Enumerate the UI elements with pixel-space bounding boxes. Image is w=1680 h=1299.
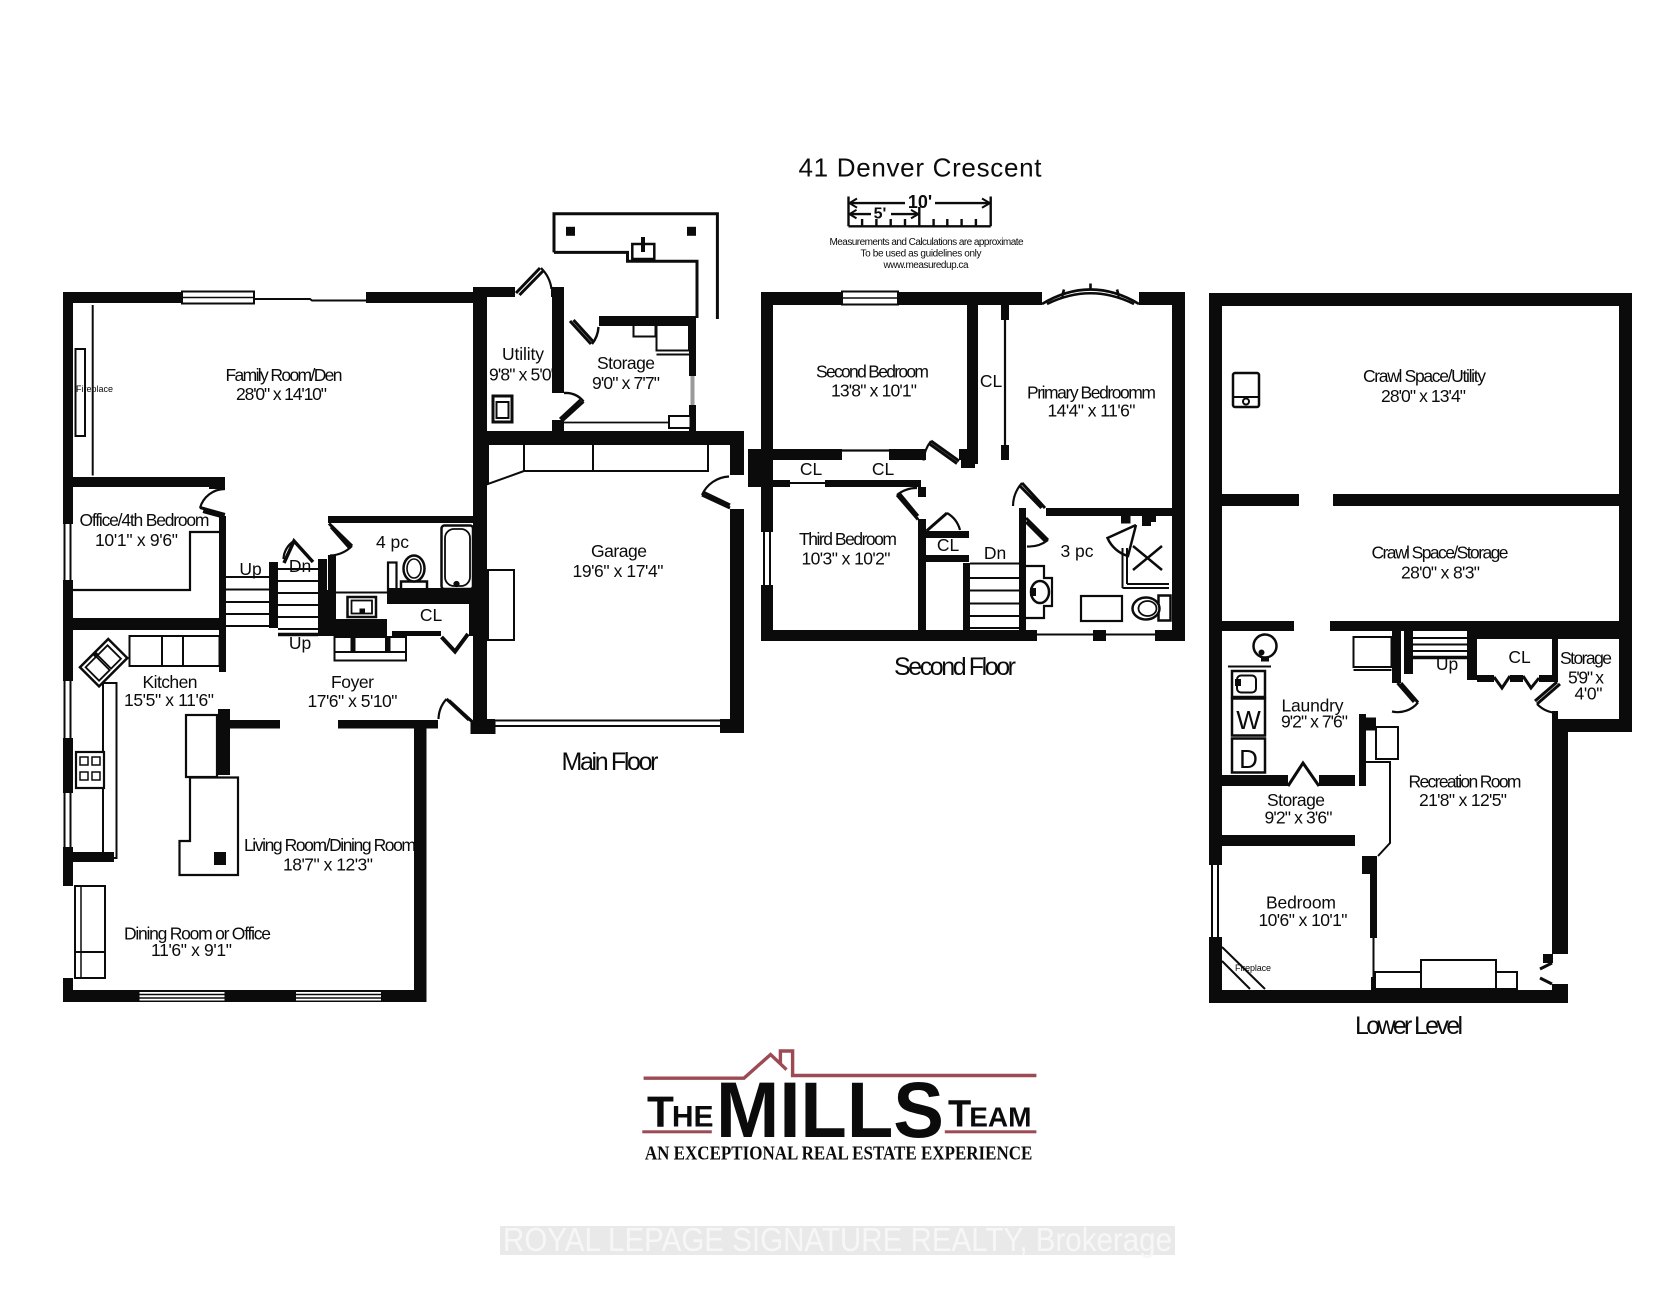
svg-text:Dn: Dn (984, 543, 1006, 563)
svg-text:3 pc: 3 pc (1060, 541, 1093, 561)
svg-text:MILLS: MILLS (716, 1065, 944, 1154)
svg-text:41 Denver Crescent: 41 Denver Crescent (799, 153, 1043, 183)
svg-text:Family Room/Den: Family Room/Den (226, 365, 343, 385)
svg-text:9'2" x 7'6": 9'2" x 7'6" (1281, 712, 1348, 732)
svg-text:28'0" x 13'4": 28'0" x 13'4" (1381, 386, 1466, 406)
svg-text:Kitchen: Kitchen (143, 672, 198, 692)
svg-text:Fireplace: Fireplace (1235, 963, 1271, 973)
svg-text:5': 5' (874, 206, 887, 223)
svg-text:19'6" x 17'4": 19'6" x 17'4" (573, 561, 664, 581)
svg-text:Utility: Utility (502, 344, 544, 364)
svg-text:Storage: Storage (1560, 648, 1612, 668)
svg-text:28'0" x 8'3": 28'0" x 8'3" (1401, 563, 1480, 583)
svg-text:CL: CL (937, 535, 960, 555)
svg-text:11'6" x 9'1": 11'6" x 9'1" (151, 940, 232, 960)
svg-text:13'8" x 10'1": 13'8" x 10'1" (831, 381, 917, 401)
svg-text:Crawl Space/Utility: Crawl Space/Utility (1363, 366, 1486, 386)
svg-text:Foyer: Foyer (331, 672, 374, 692)
svg-text:10'6" x 10'1": 10'6" x 10'1" (1259, 910, 1348, 930)
svg-text:D: D (1239, 744, 1258, 774)
svg-text:Storage: Storage (597, 353, 655, 373)
svg-text:10'1" x 9'6": 10'1" x 9'6" (95, 530, 178, 550)
svg-text:21'8" x 12'5": 21'8" x 12'5" (1419, 790, 1507, 810)
svg-text:CL: CL (980, 371, 1003, 391)
svg-text:W: W (1236, 705, 1261, 735)
svg-text:To be used as guidelines only: To be used as guidelines only (861, 249, 982, 260)
svg-text:Second Bedroom: Second Bedroom (816, 362, 929, 382)
svg-text:9'8" x 5'0": 9'8" x 5'0" (489, 365, 557, 385)
svg-text:15'5" x 11'6": 15'5" x 11'6" (124, 690, 214, 710)
svg-text:Up: Up (1436, 654, 1458, 674)
svg-text:4'0": 4'0" (1575, 684, 1603, 704)
svg-text:28'0" x 14'10": 28'0" x 14'10" (236, 384, 327, 404)
svg-text:CL: CL (420, 605, 443, 625)
svg-text:CL: CL (1508, 647, 1531, 667)
svg-text:9'0" x 7'7": 9'0" x 7'7" (592, 373, 660, 393)
svg-text:10'3" x 10'2": 10'3" x 10'2" (802, 549, 891, 569)
svg-text:Up: Up (289, 633, 311, 653)
svg-text:Lower Level: Lower Level (1355, 1012, 1463, 1040)
svg-text:Crawl Space/Storage: Crawl Space/Storage (1372, 543, 1509, 563)
svg-text:www.measuredup.ca: www.measuredup.ca (883, 260, 969, 271)
svg-text:Primary Bedroomm: Primary Bedroomm (1027, 383, 1156, 403)
svg-text:Fireplace: Fireplace (76, 384, 113, 394)
svg-text:Main Floor: Main Floor (562, 748, 659, 776)
svg-text:9'2" x 3'6": 9'2" x 3'6" (1265, 808, 1333, 828)
svg-text:Up: Up (239, 559, 261, 579)
svg-text:17'6" x 5'10": 17'6" x 5'10" (308, 691, 398, 711)
svg-text:Living Room/Dining Room: Living Room/Dining Room (244, 835, 416, 855)
svg-text:14'4" x 11'6": 14'4" x 11'6" (1048, 401, 1136, 421)
svg-text:Recreation Room: Recreation Room (1409, 772, 1522, 792)
svg-text:18'7" x 12'3": 18'7" x 12'3" (283, 855, 373, 875)
svg-text:AN EXCEPTIONAL REAL ESTATE EXP: AN EXCEPTIONAL REAL ESTATE EXPERIENCE (645, 1143, 1033, 1165)
svg-text:Third Bedroom: Third Bedroom (799, 529, 897, 549)
svg-text:4 pc: 4 pc (376, 532, 409, 552)
svg-text:Office/4th Bedroom: Office/4th Bedroom (80, 510, 210, 530)
svg-text:CL: CL (872, 459, 895, 479)
svg-text:CL: CL (800, 459, 823, 479)
svg-text:Dn: Dn (289, 556, 311, 576)
svg-text:10': 10' (908, 192, 932, 212)
svg-text:Measurements and Calculations: Measurements and Calculations are approx… (830, 237, 1024, 248)
svg-text:Second Floor: Second Floor (894, 653, 1016, 681)
svg-text:ROYAL LEPAGE SIGNATURE REALTY,: ROYAL LEPAGE SIGNATURE REALTY, Brokerage (503, 1221, 1172, 1258)
svg-text:Garage: Garage (591, 541, 647, 561)
